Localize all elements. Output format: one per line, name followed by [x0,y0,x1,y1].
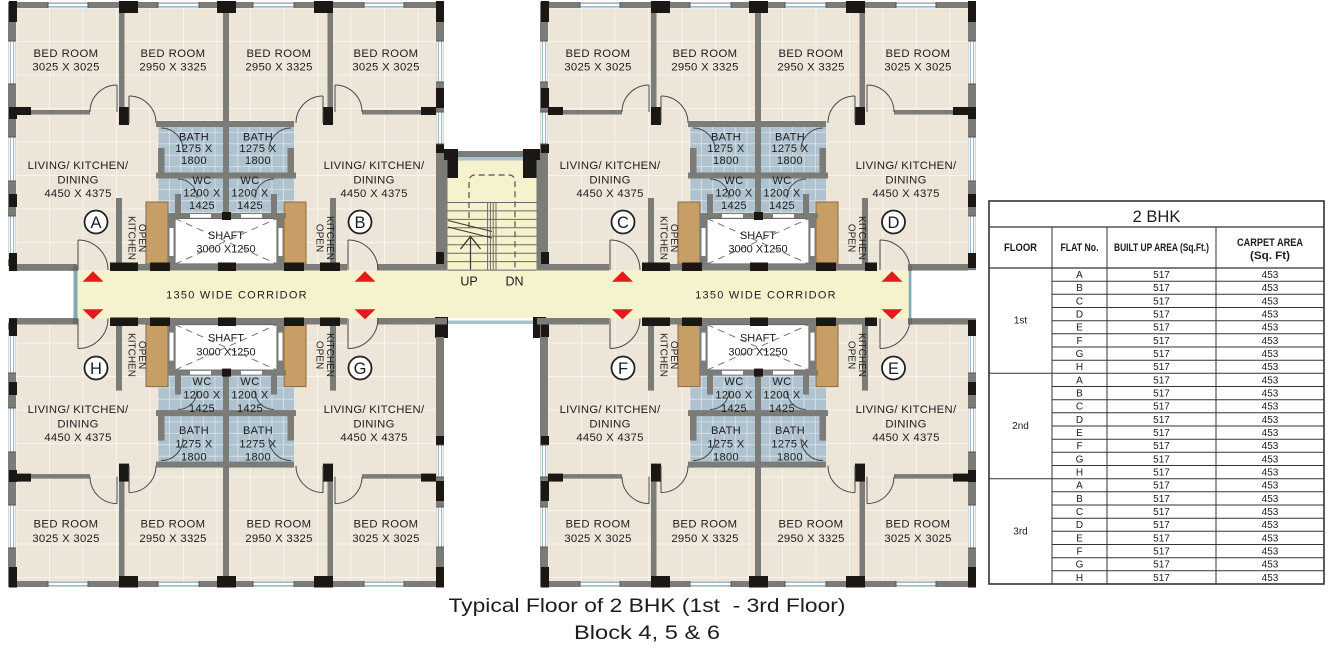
svg-text:453: 453 [1262,270,1279,281]
svg-text:1275 X: 1275 X [175,143,213,155]
svg-text:WC: WC [772,175,791,187]
svg-text:DN: DN [505,275,523,289]
svg-text:2nd: 2nd [1012,421,1029,432]
svg-text:FLAT No.: FLAT No. [1061,242,1099,254]
svg-text:2950 X 3325: 2950 X 3325 [139,62,206,74]
svg-text:517: 517 [1153,362,1170,373]
svg-text:D: D [1076,310,1083,321]
svg-text:LIVING/ KITCHEN/: LIVING/ KITCHEN/ [856,404,957,416]
svg-text:BATH: BATH [711,425,741,437]
svg-text:517: 517 [1153,428,1170,439]
svg-text:WC: WC [192,376,211,388]
svg-text:BED ROOM: BED ROOM [246,48,311,60]
svg-text:BED ROOM: BED ROOM [33,519,98,531]
svg-text:1425: 1425 [769,200,795,212]
svg-text:H: H [1076,362,1083,373]
svg-text:1200 X: 1200 X [183,188,221,200]
svg-text:LIVING/ KITCHEN/: LIVING/ KITCHEN/ [28,160,129,172]
svg-text:F: F [1076,336,1082,347]
svg-text:517: 517 [1153,573,1170,584]
svg-text:517: 517 [1153,441,1170,452]
svg-text:2950 X 3325: 2950 X 3325 [671,533,738,545]
svg-text:1275 X: 1275 X [239,439,277,451]
svg-text:3000 X1250: 3000 X1250 [196,244,255,256]
svg-text:453: 453 [1262,310,1279,321]
svg-text:CARPET AREA: CARPET AREA [1237,237,1303,249]
svg-text:453: 453 [1262,362,1279,373]
svg-text:SHAFT: SHAFT [740,333,776,345]
svg-text:1200 X: 1200 X [183,390,221,402]
svg-text:3025 X 3025: 3025 X 3025 [352,62,419,74]
svg-text:UP: UP [460,275,477,289]
svg-text:4450 X 4375: 4450 X 4375 [44,432,111,444]
svg-text:D: D [888,214,900,232]
svg-text:BED ROOM: BED ROOM [140,519,205,531]
svg-text:1350 WIDE CORRIDOR: 1350 WIDE CORRIDOR [695,290,837,302]
svg-text:Block 4, 5 & 6: Block 4, 5 & 6 [574,622,720,644]
svg-text:3000 X1250: 3000 X1250 [728,244,787,256]
svg-text:517: 517 [1153,389,1170,400]
svg-text:1350 WIDE CORRIDOR: 1350 WIDE CORRIDOR [166,290,308,302]
svg-text:F: F [618,360,628,378]
svg-text:3000 X1250: 3000 X1250 [728,347,787,359]
svg-text:453: 453 [1262,533,1279,544]
svg-text:3025 X 3025: 3025 X 3025 [564,62,631,74]
svg-text:C: C [1076,402,1083,413]
svg-text:517: 517 [1153,336,1170,347]
svg-text:517: 517 [1153,323,1170,334]
svg-text:BED ROOM: BED ROOM [672,48,737,60]
svg-text:3000 X1250: 3000 X1250 [196,347,255,359]
svg-text:517: 517 [1153,415,1170,426]
svg-text:C: C [1076,296,1083,307]
svg-text:453: 453 [1262,296,1279,307]
svg-text:1200 X: 1200 X [715,390,753,402]
svg-text:1275 X: 1275 X [175,439,213,451]
svg-text:453: 453 [1262,494,1279,505]
svg-text:A: A [1076,481,1083,492]
svg-text:BED ROOM: BED ROOM [778,48,843,60]
svg-text:3025 X 3025: 3025 X 3025 [32,62,99,74]
svg-text:453: 453 [1262,415,1279,426]
svg-text:BATH: BATH [711,132,741,144]
svg-text:1200 X: 1200 X [231,390,269,402]
svg-text:453: 453 [1262,468,1279,479]
svg-text:E: E [888,360,899,378]
svg-text:453: 453 [1262,454,1279,465]
svg-text:1800: 1800 [777,155,803,167]
svg-text:453: 453 [1262,323,1279,334]
svg-text:517: 517 [1153,533,1170,544]
svg-text:LIVING/ KITCHEN/: LIVING/ KITCHEN/ [560,160,661,172]
svg-text:DINING: DINING [885,175,926,187]
svg-text:1425: 1425 [189,200,215,212]
svg-text:LIVING/ KITCHEN/: LIVING/ KITCHEN/ [560,404,661,416]
svg-text:4450 X 4375: 4450 X 4375 [576,188,643,200]
svg-text:1275 X: 1275 X [707,143,745,155]
svg-text:1800: 1800 [181,452,207,464]
svg-text:BED ROOM: BED ROOM [565,519,630,531]
svg-text:B: B [1076,283,1083,294]
svg-text:1800: 1800 [245,452,271,464]
svg-text:BATH: BATH [775,425,805,437]
svg-text:BED ROOM: BED ROOM [778,519,843,531]
svg-text:517: 517 [1153,283,1170,294]
svg-text:2950 X 3325: 2950 X 3325 [245,62,312,74]
svg-text:1st: 1st [1014,316,1028,327]
svg-text:G: G [1076,454,1084,465]
svg-text:1275 X: 1275 X [239,143,277,155]
svg-text:WC: WC [772,376,791,388]
svg-text:B: B [354,214,365,232]
svg-text:BED ROOM: BED ROOM [885,48,950,60]
svg-text:E: E [1076,533,1083,544]
svg-text:517: 517 [1153,454,1170,465]
svg-text:453: 453 [1262,283,1279,294]
svg-text:1425: 1425 [721,200,747,212]
svg-text:517: 517 [1153,520,1170,531]
svg-text:2950 X 3325: 2950 X 3325 [777,62,844,74]
svg-text:2950 X 3325: 2950 X 3325 [139,533,206,545]
svg-text:4450 X 4375: 4450 X 4375 [872,432,939,444]
svg-text:SHAFT: SHAFT [740,230,776,242]
svg-text:1275 X: 1275 X [707,439,745,451]
svg-text:1275 X: 1275 X [771,143,809,155]
svg-text:LIVING/ KITCHEN/: LIVING/ KITCHEN/ [28,404,129,416]
svg-text:3025 X 3025: 3025 X 3025 [564,533,631,545]
svg-text:BED ROOM: BED ROOM [885,519,950,531]
svg-text:3025 X 3025: 3025 X 3025 [884,533,951,545]
svg-text:C: C [1076,507,1083,518]
svg-text:453: 453 [1262,573,1279,584]
svg-text:4450 X 4375: 4450 X 4375 [576,432,643,444]
svg-text:1800: 1800 [245,155,271,167]
svg-text:1275 X: 1275 X [771,439,809,451]
svg-text:4450 X 4375: 4450 X 4375 [44,188,111,200]
svg-text:517: 517 [1153,481,1170,492]
svg-text:E: E [1076,323,1083,334]
svg-text:1425: 1425 [237,200,263,212]
svg-text:453: 453 [1262,507,1279,518]
svg-text:3025 X 3025: 3025 X 3025 [884,62,951,74]
svg-text:DINING: DINING [885,419,926,431]
svg-text:3025 X 3025: 3025 X 3025 [32,533,99,545]
svg-text:BATH: BATH [179,425,209,437]
svg-text:BATH: BATH [243,132,273,144]
svg-text:517: 517 [1153,494,1170,505]
svg-text:517: 517 [1153,507,1170,518]
svg-text:H: H [90,360,102,378]
svg-text:1800: 1800 [181,155,207,167]
svg-text:WC: WC [724,376,743,388]
svg-text:1800: 1800 [713,452,739,464]
svg-text:4450 X 4375: 4450 X 4375 [872,188,939,200]
svg-text:FLOOR: FLOOR [1004,242,1037,254]
svg-text:453: 453 [1262,441,1279,452]
svg-text:3rd: 3rd [1013,526,1027,537]
svg-text:Typical Floor of 2 BHK (1st -: Typical Floor of 2 BHK (1st - 3rd Floor) [449,595,846,617]
svg-text:B: B [1076,389,1083,400]
svg-text:2950 X 3325: 2950 X 3325 [671,62,738,74]
svg-text:453: 453 [1262,481,1279,492]
svg-text:WC: WC [240,376,259,388]
svg-text:DINING: DINING [353,175,394,187]
svg-text:BATH: BATH [243,425,273,437]
svg-text:453: 453 [1262,560,1279,571]
svg-text:(Sq. Ft): (Sq. Ft) [1250,250,1290,262]
svg-text:453: 453 [1262,349,1279,360]
svg-text:453: 453 [1262,336,1279,347]
svg-text:517: 517 [1153,560,1170,571]
svg-text:1800: 1800 [777,452,803,464]
svg-text:517: 517 [1153,468,1170,479]
svg-text:4450 X 4375: 4450 X 4375 [340,188,407,200]
svg-text:517: 517 [1153,349,1170,360]
svg-text:517: 517 [1153,402,1170,413]
svg-text:DINING: DINING [57,175,98,187]
svg-text:SHAFT: SHAFT [208,333,244,345]
svg-text:1200 X: 1200 X [231,188,269,200]
svg-text:1425: 1425 [769,403,795,415]
svg-text:453: 453 [1262,428,1279,439]
svg-text:LIVING/ KITCHEN/: LIVING/ KITCHEN/ [324,404,425,416]
svg-text:DINING: DINING [589,175,630,187]
svg-text:DINING: DINING [589,419,630,431]
svg-text:H: H [1076,468,1083,479]
svg-text:2950 X 3325: 2950 X 3325 [777,533,844,545]
svg-text:BATH: BATH [775,132,805,144]
svg-text:2 BHK: 2 BHK [1133,208,1181,226]
svg-text:BATH: BATH [179,132,209,144]
svg-text:453: 453 [1262,547,1279,558]
svg-text:H: H [1076,573,1083,584]
svg-text:BED ROOM: BED ROOM [565,48,630,60]
svg-text:517: 517 [1153,375,1170,386]
svg-text:A: A [1076,375,1083,386]
svg-text:BED ROOM: BED ROOM [246,519,311,531]
svg-text:WC: WC [192,175,211,187]
svg-text:C: C [617,214,629,232]
svg-text:G: G [354,360,367,378]
svg-text:A: A [90,214,101,232]
svg-text:BED ROOM: BED ROOM [672,519,737,531]
svg-text:DINING: DINING [353,419,394,431]
svg-text:D: D [1076,415,1083,426]
svg-text:WC: WC [240,175,259,187]
svg-text:453: 453 [1262,389,1279,400]
svg-text:DINING: DINING [57,419,98,431]
svg-text:517: 517 [1153,296,1170,307]
svg-text:F: F [1076,441,1082,452]
svg-text:B: B [1076,494,1083,505]
svg-text:517: 517 [1153,547,1170,558]
svg-text:E: E [1076,428,1083,439]
svg-text:BUILT UP AREA (Sq.Ft.): BUILT UP AREA (Sq.Ft.) [1114,242,1209,254]
svg-text:D: D [1076,520,1083,531]
svg-text:517: 517 [1153,310,1170,321]
svg-text:3025 X 3025: 3025 X 3025 [352,533,419,545]
svg-text:4450 X 4375: 4450 X 4375 [340,432,407,444]
svg-text:LIVING/ KITCHEN/: LIVING/ KITCHEN/ [324,160,425,172]
svg-text:517: 517 [1153,270,1170,281]
svg-text:1800: 1800 [713,155,739,167]
svg-text:BED ROOM: BED ROOM [353,48,418,60]
svg-text:2950 X 3325: 2950 X 3325 [245,533,312,545]
svg-text:WC: WC [724,175,743,187]
svg-text:G: G [1076,349,1084,360]
svg-text:453: 453 [1262,520,1279,531]
svg-text:G: G [1076,560,1084,571]
svg-text:A: A [1076,270,1083,281]
svg-text:453: 453 [1262,402,1279,413]
svg-text:F: F [1076,547,1082,558]
svg-text:BED ROOM: BED ROOM [353,519,418,531]
svg-text:BED ROOM: BED ROOM [33,48,98,60]
svg-text:1425: 1425 [237,403,263,415]
svg-text:1200 X: 1200 X [763,188,801,200]
svg-text:1200 X: 1200 X [715,188,753,200]
svg-text:LIVING/ KITCHEN/: LIVING/ KITCHEN/ [856,160,957,172]
svg-text:1425: 1425 [189,403,215,415]
svg-text:1200 X: 1200 X [763,390,801,402]
svg-text:1425: 1425 [721,403,747,415]
svg-text:BED ROOM: BED ROOM [140,48,205,60]
svg-text:SHAFT: SHAFT [208,230,244,242]
svg-text:453: 453 [1262,375,1279,386]
